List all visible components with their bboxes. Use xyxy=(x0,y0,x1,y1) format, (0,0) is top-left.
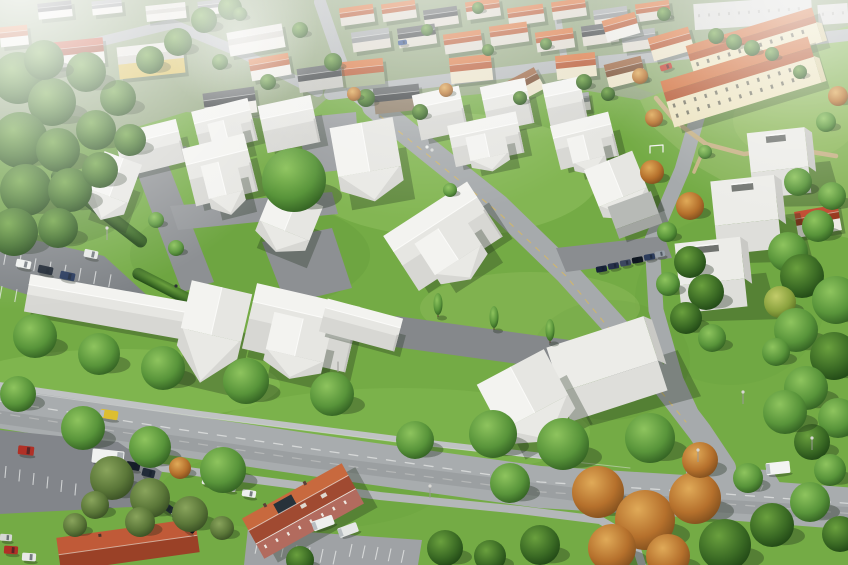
tree xyxy=(13,314,57,358)
tree xyxy=(427,530,463,565)
tree xyxy=(656,272,680,296)
tree xyxy=(814,454,846,486)
poplar-tree xyxy=(490,306,499,328)
tree xyxy=(469,410,517,458)
street-lamp xyxy=(810,436,813,439)
tree xyxy=(200,447,246,493)
tree xyxy=(762,338,790,366)
windshield xyxy=(11,547,14,553)
vehicle-body xyxy=(4,546,19,555)
tree xyxy=(733,463,763,493)
windshield xyxy=(29,554,32,560)
aerial-scene-canvas xyxy=(0,0,848,565)
tree xyxy=(141,346,185,390)
tree xyxy=(625,413,675,463)
tree xyxy=(490,463,530,503)
tree xyxy=(674,246,706,278)
tree xyxy=(750,503,794,547)
tree xyxy=(669,472,721,524)
tree xyxy=(223,358,269,404)
tree xyxy=(790,482,830,522)
pedestrian xyxy=(174,284,177,287)
tree xyxy=(81,491,109,519)
tree xyxy=(670,302,702,334)
tree xyxy=(537,418,589,470)
tree xyxy=(129,426,171,468)
tree xyxy=(78,333,120,375)
street-lamp xyxy=(336,358,339,361)
tree xyxy=(682,442,718,478)
street-lamp xyxy=(741,390,744,393)
street-lamp xyxy=(428,484,431,487)
tree xyxy=(0,376,36,412)
tree xyxy=(61,406,105,450)
tree xyxy=(63,513,87,537)
vehicle-body xyxy=(18,445,35,456)
windshield xyxy=(6,535,9,540)
street-lamp xyxy=(696,448,699,451)
chimney xyxy=(98,534,101,537)
vehicle-body xyxy=(0,534,12,542)
tree xyxy=(172,496,208,532)
tree xyxy=(210,516,234,540)
vehicle-body xyxy=(22,553,37,562)
tree xyxy=(572,466,624,518)
poplar-tree xyxy=(434,293,443,315)
poplar-tree xyxy=(546,319,555,341)
tree xyxy=(698,324,726,352)
tree xyxy=(125,507,155,537)
tree xyxy=(520,525,560,565)
tree xyxy=(763,390,807,434)
tree xyxy=(396,421,434,459)
tree xyxy=(657,222,677,242)
tree xyxy=(310,372,354,416)
tree xyxy=(169,457,191,479)
aerial-development-visualization xyxy=(0,0,848,565)
